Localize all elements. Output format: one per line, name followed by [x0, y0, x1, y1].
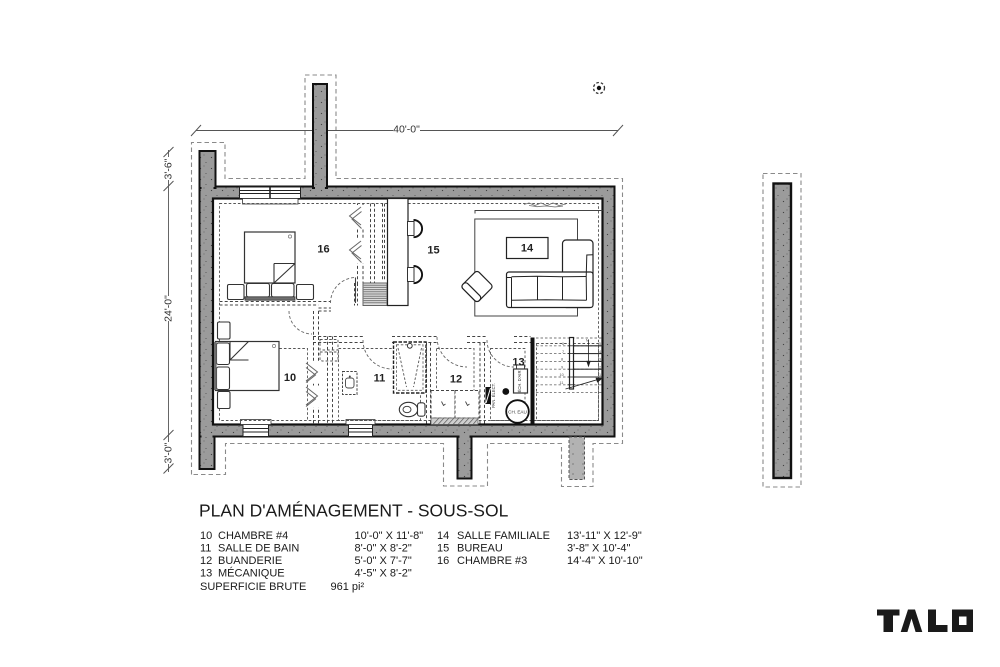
svg-text:BUREAU: BUREAU	[457, 543, 503, 555]
svg-text:14: 14	[437, 530, 449, 542]
svg-text:12: 12	[450, 374, 462, 386]
svg-text:BUANDERIE: BUANDERIE	[218, 555, 282, 567]
svg-text:11: 11	[560, 381, 564, 385]
svg-text:PLAN D'AMÉNAGEMENT - SOUS-SOL: PLAN D'AMÉNAGEMENT - SOUS-SOL	[199, 501, 509, 521]
svg-text:CHAMBRE #4: CHAMBRE #4	[218, 530, 288, 542]
svg-text:CHAMBRE #3: CHAMBRE #3	[457, 555, 527, 567]
svg-text:4: 4	[599, 350, 601, 354]
svg-text:961 pi²: 961 pi²	[331, 581, 365, 593]
svg-text:8: 8	[561, 358, 563, 362]
svg-text:3'-8" X 10'-4": 3'-8" X 10'-4"	[567, 543, 630, 555]
svg-text:SUPERFICIE BRUTE: SUPERFICIE BRUTE	[200, 581, 306, 593]
svg-text:ÉCH. D'AIR: ÉCH. D'AIR	[517, 371, 522, 393]
svg-text:1: 1	[599, 373, 601, 377]
svg-text:8'-0" X 8'-2": 8'-0" X 8'-2"	[355, 543, 412, 555]
svg-text:5: 5	[599, 342, 601, 346]
svg-text:10: 10	[284, 372, 296, 384]
svg-text:10: 10	[200, 530, 212, 542]
svg-text:10'-0" X 11'-8": 10'-0" X 11'-8"	[355, 530, 424, 542]
svg-text:12: 12	[200, 555, 212, 567]
svg-text:3'-6": 3'-6"	[163, 158, 175, 179]
svg-text:15: 15	[427, 245, 439, 257]
svg-text:4'-5" X 8'-2": 4'-5" X 8'-2"	[355, 568, 412, 580]
svg-text:SALLE FAMILIALE: SALLE FAMILIALE	[457, 530, 550, 542]
svg-text:16: 16	[437, 555, 449, 567]
svg-text:10: 10	[560, 373, 564, 377]
svg-text:11: 11	[200, 543, 211, 555]
svg-text:14: 14	[521, 243, 534, 255]
svg-text:14'-4" X 10'-10": 14'-4" X 10'-10"	[567, 555, 643, 567]
svg-text:6: 6	[562, 342, 564, 346]
svg-text:5'-0" X 7'-7": 5'-0" X 7'-7"	[355, 555, 412, 567]
svg-text:PAN. ÉLECT.: PAN. ÉLECT.	[491, 383, 496, 408]
svg-text:3: 3	[599, 358, 601, 362]
svg-text:7: 7	[562, 350, 564, 354]
svg-text:MÉCANIQUE: MÉCANIQUE	[218, 567, 285, 580]
svg-text:15: 15	[437, 543, 449, 555]
svg-text:CH. EAU: CH. EAU	[508, 410, 527, 415]
svg-text:SALLE DE BAIN: SALLE DE BAIN	[218, 543, 299, 555]
svg-text:13'-11" X 12'-9": 13'-11" X 12'-9"	[567, 530, 642, 542]
svg-text:13: 13	[200, 568, 212, 580]
svg-text:2: 2	[599, 365, 601, 369]
svg-text:16: 16	[317, 244, 329, 256]
svg-text:3'-0": 3'-0"	[163, 442, 175, 463]
svg-text:13: 13	[512, 357, 524, 369]
svg-text:9: 9	[561, 365, 563, 369]
svg-text:24'-0": 24'-0"	[163, 295, 175, 322]
svg-text:40'-0": 40'-0"	[393, 124, 420, 136]
svg-text:11: 11	[374, 373, 386, 385]
